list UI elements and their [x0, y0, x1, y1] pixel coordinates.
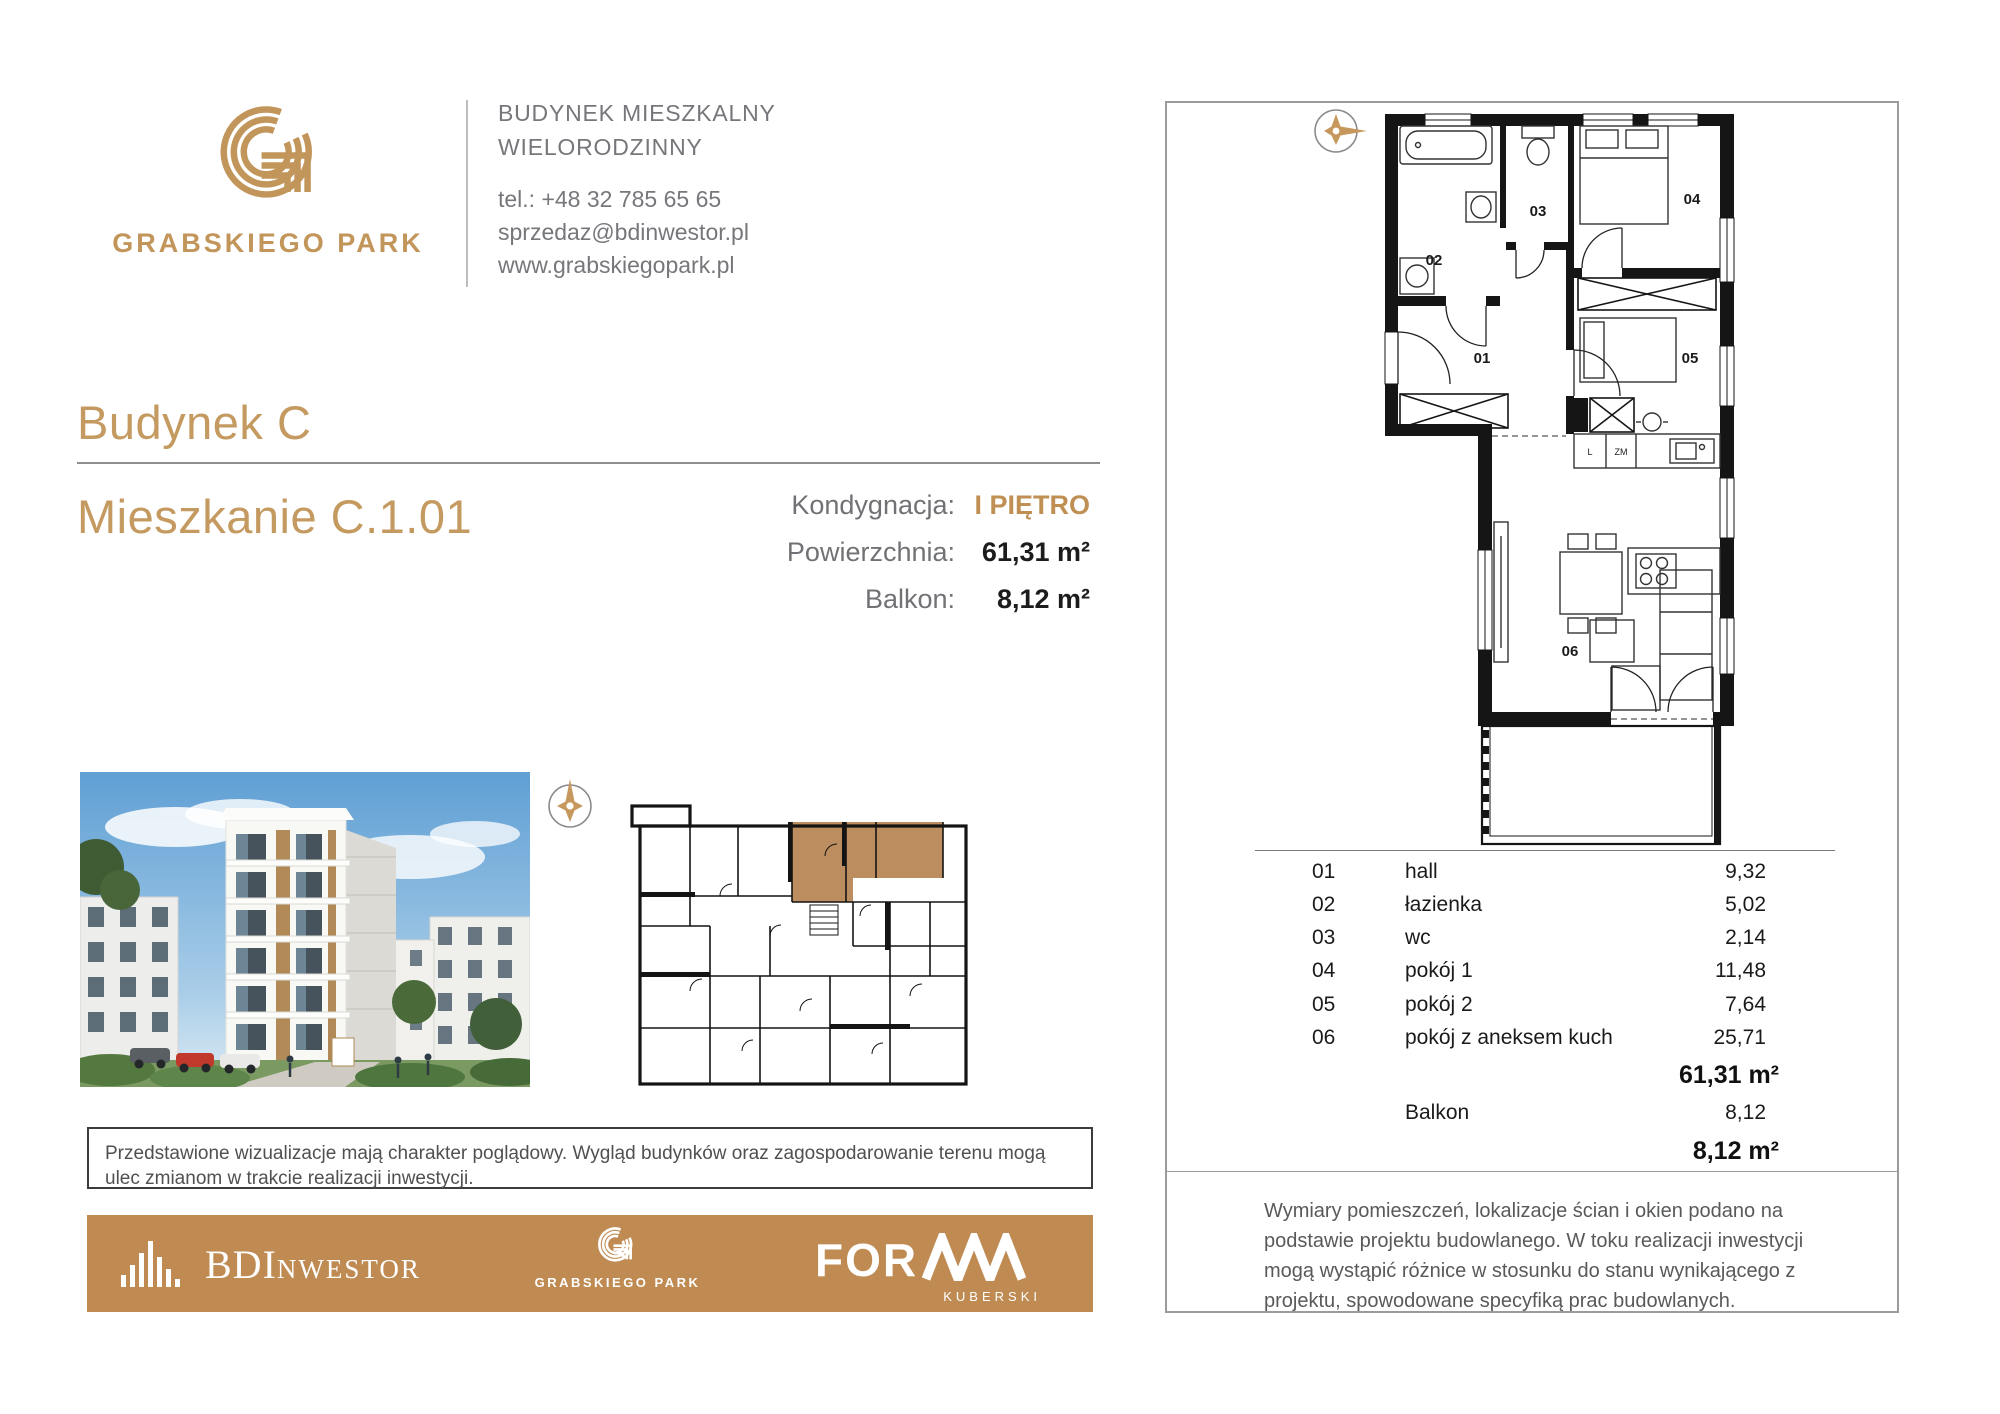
plan-label-02: 02	[1426, 252, 1443, 269]
flyer-page: GRABSKIEGO PARK BUDYNEK MIESZKALNY WIELO…	[0, 0, 2000, 1414]
plan-label-03: 03	[1530, 203, 1547, 220]
total-area: 61,31 m²	[1555, 1061, 1779, 1090]
area-label: Powierzchnia:	[557, 537, 955, 568]
building-title: Budynek C	[77, 395, 311, 450]
balcony-value: 8,12 m²	[956, 584, 1090, 615]
grabskiego-park-logo-icon	[212, 100, 330, 218]
kuberski-text: KUBERSKI	[815, 1289, 1041, 1304]
room-table: 01 hall 9,32 02 łazienka 5,02 03 wc 2,14…	[1165, 858, 1899, 1168]
plan-label-01: 01	[1474, 350, 1491, 367]
compass-icon	[543, 777, 597, 833]
room-area: 11,48	[1555, 959, 1766, 983]
footer-logo-bar: BDINWESTOR GRABSKIEGO PARK FOR KUBERSKI	[87, 1215, 1093, 1312]
plan-label-l: L	[1587, 447, 1592, 457]
title-divider	[77, 462, 1100, 464]
room-area: 2,14	[1555, 926, 1766, 950]
email-address: sprzedaz@bdinwestor.pl	[498, 216, 918, 249]
nwestor-text: NWESTOR	[277, 1254, 421, 1284]
room-id: 03	[1312, 926, 1372, 950]
plan-label-06: 06	[1562, 643, 1579, 660]
building-visualization	[80, 772, 530, 1087]
phone-number: tel.: +48 32 785 65 65	[498, 183, 918, 216]
header-divider	[466, 100, 468, 287]
bdinwestor-bars-icon	[119, 1239, 189, 1289]
room-id: 01	[1312, 860, 1372, 884]
bdinwestor-logo: BDINWESTOR	[205, 1241, 421, 1288]
balcony-row-area: 8,12	[1555, 1101, 1766, 1125]
room-area: 7,64	[1555, 993, 1766, 1017]
grabskiego-park-mini-icon	[595, 1225, 639, 1269]
table-top-rule	[1255, 850, 1835, 851]
room-area: 25,71	[1555, 1026, 1766, 1050]
floor-overview-plan	[630, 796, 970, 1091]
room-id: 06	[1312, 1026, 1372, 1050]
balcony-total: 8,12 m²	[1555, 1137, 1779, 1166]
building-type-line1: BUDYNEK MIESZKALNY	[498, 96, 918, 130]
apartment-title: Mieszkanie C.1.01	[77, 489, 472, 544]
building-type-line2: WIELORODZINNY	[498, 130, 918, 164]
plan-label-zm: ZM	[1615, 447, 1628, 457]
room-id: 02	[1312, 893, 1372, 917]
plan-label-05: 05	[1682, 350, 1699, 367]
floor-label: Kondygnacja:	[557, 490, 955, 521]
floor-value: I PIĘTRO	[956, 490, 1090, 521]
room-id: 05	[1312, 993, 1372, 1017]
visualization-disclaimer: Przedstawione wizualizacje mają charakte…	[87, 1127, 1093, 1189]
forma-logo: FOR KUBERSKI	[815, 1233, 1065, 1304]
panel-separator	[1166, 1171, 1898, 1172]
room-area: 9,32	[1555, 860, 1766, 884]
highlighted-apartment	[792, 822, 943, 878]
building-type: BUDYNEK MIESZKALNY WIELORODZINNY	[498, 96, 918, 164]
website-url: www.grabskiegopark.pl	[498, 249, 918, 282]
forma-text: FOR	[815, 1234, 918, 1286]
room-area: 5,02	[1555, 893, 1766, 917]
forma-zigzag-icon	[922, 1233, 1040, 1281]
grabskiego-park-mini-label: GRABSKIEGO PARK	[495, 1275, 740, 1290]
plan-label-04: 04	[1684, 191, 1701, 208]
contact-block: tel.: +48 32 785 65 65 sprzedaz@bdinwest…	[498, 183, 918, 282]
apartment-floor-plan: 01 02 03 04 05 06 L ZM	[1330, 100, 1750, 850]
balcony-label: Balkon:	[557, 584, 955, 615]
room-id: 04	[1312, 959, 1372, 983]
bdi-text: BDI	[205, 1242, 277, 1287]
area-value: 61,31 m²	[956, 537, 1090, 568]
brand-name: GRABSKIEGO PARK	[73, 228, 463, 259]
dimensions-disclaimer: Wymiary pomieszczeń, lokalizacje ścian i…	[1264, 1196, 1826, 1316]
